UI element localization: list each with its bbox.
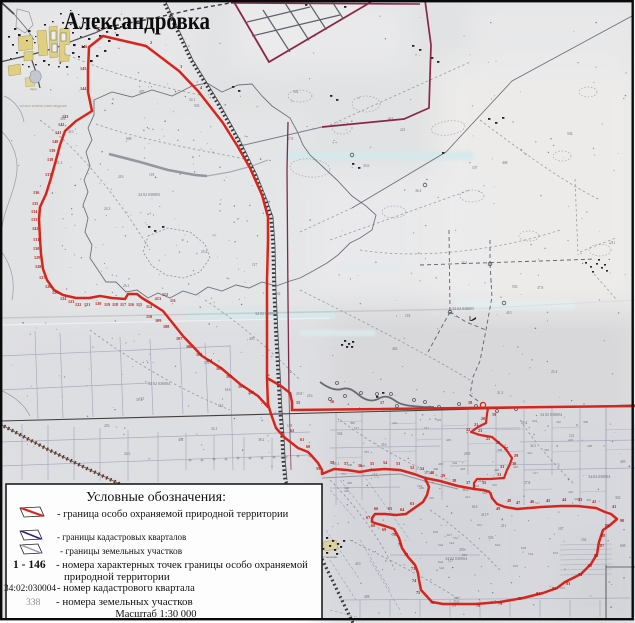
svg-text:68: 68 [371, 523, 375, 528]
svg-text:природной территории: природной территории [64, 571, 170, 583]
svg-text:133: 133 [31, 217, 37, 222]
svg-text:- граница особо охраняемой при: - граница особо охраняемой природной тер… [57, 509, 289, 520]
svg-text:23: 23 [478, 428, 482, 433]
svg-text:144: 144 [80, 86, 87, 91]
svg-text:403: 403 [438, 462, 443, 466]
svg-text:37.8: 37.8 [537, 286, 543, 290]
svg-text:109: 109 [155, 318, 161, 323]
svg-text:140: 140 [52, 139, 58, 144]
svg-text:72: 72 [404, 552, 408, 557]
svg-text:34 02 030004: 34 02 030004 [445, 556, 467, 561]
svg-text:33: 33 [497, 472, 501, 477]
svg-text:34 02 030003: 34 02 030003 [138, 192, 160, 197]
svg-text:503: 503 [436, 418, 441, 422]
svg-text:34 02 030004: 34 02 030004 [540, 412, 562, 417]
svg-text:410: 410 [355, 562, 361, 566]
svg-text:45: 45 [546, 498, 550, 503]
svg-text:колхоз имени александрова: колхоз имени александрова [20, 103, 67, 108]
svg-text:87: 87 [600, 543, 604, 548]
svg-text:517: 517 [533, 471, 538, 475]
svg-text:624: 624 [438, 560, 443, 564]
svg-text:524: 524 [417, 484, 422, 488]
svg-text:416: 416 [350, 421, 355, 425]
svg-text:71: 71 [398, 542, 402, 547]
svg-text:625: 625 [513, 564, 518, 568]
svg-text:29.8: 29.8 [464, 452, 470, 456]
svg-text:1 - 146: 1 - 146 [13, 559, 46, 571]
svg-text:117: 117 [252, 263, 257, 267]
svg-text:76: 76 [430, 600, 434, 605]
svg-text:135: 135 [32, 201, 38, 206]
svg-text:562: 562 [544, 448, 549, 452]
svg-text:33.6: 33.6 [363, 164, 369, 168]
svg-text:27: 27 [504, 446, 508, 451]
svg-text:70: 70 [392, 532, 396, 537]
svg-text:107: 107 [176, 336, 182, 341]
svg-text:59: 59 [316, 466, 320, 471]
svg-text:524: 524 [528, 552, 533, 556]
svg-text:17: 17 [380, 400, 384, 405]
svg-text:130: 130 [33, 246, 39, 251]
svg-text:408: 408 [502, 161, 508, 165]
svg-text:41: 41 [612, 504, 616, 509]
svg-text:26: 26 [496, 440, 500, 445]
svg-text:40: 40 [430, 470, 434, 475]
svg-text:503: 503 [488, 536, 494, 540]
svg-text:503: 503 [194, 104, 200, 108]
svg-text:616: 616 [225, 388, 231, 392]
svg-text:145: 145 [80, 66, 86, 71]
svg-text:65: 65 [388, 506, 392, 511]
svg-text:Александровка: Александровка [64, 8, 210, 35]
svg-text:29.8: 29.8 [296, 392, 302, 396]
svg-text:34:02:030004: 34:02:030004 [4, 584, 56, 594]
svg-text:410: 410 [68, 130, 74, 134]
svg-text:504: 504 [567, 132, 573, 136]
svg-text:39: 39 [441, 473, 445, 478]
svg-text:16: 16 [330, 399, 334, 404]
svg-text:123: 123 [68, 299, 74, 304]
svg-text:46: 46 [530, 499, 534, 504]
svg-text:85: 85 [588, 563, 592, 568]
svg-text:55: 55 [370, 461, 374, 466]
svg-text:47: 47 [516, 500, 520, 505]
svg-text:142: 142 [58, 122, 64, 127]
svg-text:116: 116 [128, 302, 134, 307]
svg-text:63: 63 [410, 501, 414, 506]
svg-text:211: 211 [610, 241, 615, 245]
svg-text:34.1: 34.1 [530, 444, 536, 448]
svg-text:2: 2 [150, 40, 152, 45]
svg-text:36.4: 36.4 [415, 189, 421, 193]
svg-text:31.2: 31.2 [497, 391, 503, 395]
svg-text:504: 504 [452, 461, 457, 465]
svg-text:101: 101 [238, 384, 244, 389]
svg-text:203: 203 [459, 548, 465, 552]
svg-text:410: 410 [506, 311, 512, 315]
svg-text:- номер кадастрового квартала: - номер кадастрового квартала [57, 583, 195, 594]
svg-text:517: 517 [354, 426, 359, 430]
svg-text:517: 517 [424, 426, 429, 430]
svg-text:412: 412 [465, 495, 470, 499]
svg-text:608: 608 [126, 137, 132, 141]
svg-text:138: 138 [47, 157, 53, 162]
svg-text:141: 141 [55, 130, 61, 135]
svg-text:31.2: 31.2 [136, 398, 142, 402]
svg-text:24.3: 24.3 [124, 452, 130, 456]
svg-text:31.2: 31.2 [56, 161, 62, 165]
svg-text:216: 216 [381, 443, 387, 447]
svg-text:108: 108 [163, 324, 169, 329]
svg-text:405: 405 [249, 337, 255, 341]
svg-text:547: 547 [492, 483, 497, 487]
svg-text:126: 126 [45, 284, 51, 289]
svg-text:531: 531 [364, 450, 369, 454]
svg-text:211: 211 [501, 524, 506, 528]
svg-text:134: 134 [31, 209, 38, 214]
svg-text:88: 88 [601, 533, 605, 538]
svg-text:146: 146 [81, 44, 87, 49]
svg-text:- границы кадастровых квартало: - границы кадастровых кварталов [57, 532, 186, 542]
svg-text:78: 78 [476, 603, 480, 608]
svg-text:503: 503 [512, 285, 518, 289]
svg-text:631: 631 [553, 551, 558, 555]
svg-text:117: 117 [120, 302, 126, 307]
svg-text:617: 617 [447, 533, 452, 537]
svg-text:119: 119 [104, 302, 110, 307]
svg-text:122: 122 [75, 302, 81, 307]
svg-text:37: 37 [466, 480, 470, 485]
svg-text:20: 20 [481, 416, 485, 421]
svg-text:132: 132 [32, 226, 38, 231]
svg-text:75: 75 [416, 590, 420, 595]
svg-text:203: 203 [104, 424, 110, 428]
svg-text:127: 127 [39, 275, 45, 280]
svg-text:338: 338 [26, 597, 41, 608]
svg-text:524: 524 [532, 419, 537, 423]
svg-text:131: 131 [33, 237, 39, 242]
svg-text:24.3: 24.3 [461, 261, 467, 265]
svg-text:34 02 030004: 34 02 030004 [148, 381, 170, 386]
svg-text:402: 402 [178, 438, 184, 442]
svg-text:107: 107 [558, 527, 564, 531]
svg-text:24.3: 24.3 [104, 207, 110, 211]
svg-text:52: 52 [410, 465, 414, 470]
svg-text:129: 129 [34, 255, 40, 260]
svg-text:531: 531 [341, 472, 346, 476]
svg-text:524: 524 [449, 541, 454, 545]
svg-text:69: 69 [382, 527, 386, 532]
svg-text:112: 112 [162, 292, 168, 297]
svg-text:30: 30 [512, 461, 516, 466]
svg-text:80: 80 [518, 596, 522, 601]
svg-text:66: 66 [374, 506, 378, 511]
svg-text:143: 143 [62, 114, 68, 119]
svg-text:105: 105 [196, 352, 202, 357]
svg-text:15: 15 [296, 400, 300, 405]
svg-text:408: 408 [364, 595, 370, 599]
svg-text:118: 118 [405, 314, 410, 318]
svg-text:25: 25 [486, 436, 490, 441]
svg-text:107: 107 [472, 166, 478, 170]
svg-text:42: 42 [592, 499, 596, 504]
svg-text:100: 100 [248, 390, 254, 395]
svg-text:517: 517 [535, 501, 540, 505]
svg-text:402: 402 [392, 347, 398, 351]
svg-text:448: 448 [587, 444, 592, 448]
svg-text:120: 120 [95, 301, 101, 306]
svg-text:410: 410 [344, 489, 349, 493]
svg-text:448: 448 [583, 420, 588, 424]
svg-text:608: 608 [620, 544, 626, 548]
svg-text:22: 22 [466, 427, 470, 432]
svg-text:531: 531 [453, 536, 458, 540]
svg-text:56: 56 [358, 463, 362, 468]
svg-text:18: 18 [468, 400, 472, 405]
svg-text:416: 416 [568, 438, 573, 442]
svg-text:118: 118 [112, 302, 118, 307]
svg-text:83: 83 [566, 581, 570, 586]
svg-text:57: 57 [344, 461, 348, 466]
svg-text:81: 81 [536, 591, 540, 596]
svg-text:113: 113 [155, 296, 161, 301]
svg-text:139: 139 [49, 148, 55, 153]
svg-text:405: 405 [446, 438, 451, 442]
svg-text:- номера характерных точек гра: - номера характерных точек границы особо… [56, 560, 308, 571]
svg-text:58: 58 [330, 460, 334, 465]
svg-text:104: 104 [206, 358, 213, 363]
svg-text:216: 216 [307, 394, 313, 398]
svg-text:405: 405 [586, 498, 591, 502]
svg-text:38: 38 [452, 478, 456, 483]
svg-text:34 02 030004: 34 02 030004 [255, 311, 277, 316]
svg-text:413: 413 [481, 513, 487, 517]
svg-text:34 02 030005: 34 02 030005 [452, 306, 474, 311]
svg-text:38.2: 38.2 [258, 438, 264, 442]
svg-text:19: 19 [492, 412, 496, 417]
svg-text:61: 61 [300, 437, 304, 442]
svg-text:412: 412 [527, 451, 532, 455]
svg-text:137: 137 [45, 172, 51, 177]
svg-text:102: 102 [226, 374, 232, 379]
svg-text:524: 524 [439, 566, 444, 570]
svg-text:405: 405 [620, 460, 626, 464]
svg-text:504: 504 [337, 432, 343, 436]
svg-text:34.1: 34.1 [211, 427, 217, 431]
svg-text:416: 416 [392, 421, 397, 425]
svg-text:403: 403 [460, 467, 465, 471]
svg-text:26.1: 26.1 [123, 284, 129, 288]
svg-text:405: 405 [347, 481, 352, 485]
svg-text:37.8: 37.8 [524, 481, 530, 485]
svg-text:408: 408 [497, 448, 502, 452]
svg-text:53: 53 [396, 461, 400, 466]
svg-text:114: 114 [146, 304, 153, 309]
svg-text:216: 216 [118, 175, 124, 179]
svg-text:410: 410 [568, 490, 573, 494]
svg-text:49: 49 [496, 506, 500, 511]
svg-text:110: 110 [146, 314, 152, 319]
svg-text:60: 60 [306, 444, 310, 449]
svg-text:Условные обозначения:: Условные обозначения: [86, 490, 226, 505]
svg-text:35: 35 [482, 480, 486, 485]
svg-text:43: 43 [578, 497, 582, 502]
svg-text:25.4: 25.4 [201, 250, 207, 254]
svg-text:51: 51 [420, 466, 424, 471]
svg-text:102: 102 [581, 538, 587, 542]
svg-text:82: 82 [552, 586, 556, 591]
svg-text:618: 618 [454, 596, 459, 600]
svg-text:86: 86 [594, 553, 598, 558]
svg-text:618: 618 [433, 530, 438, 534]
svg-text:111: 111 [170, 298, 176, 303]
svg-text:618: 618 [521, 546, 526, 550]
svg-text:121: 121 [84, 302, 90, 307]
svg-text:136: 136 [33, 190, 39, 195]
svg-text:77: 77 [452, 603, 456, 608]
svg-text:616: 616 [472, 505, 478, 509]
svg-text:106: 106 [186, 344, 192, 349]
svg-text:416: 416 [429, 496, 434, 500]
svg-text:103: 103 [216, 366, 222, 371]
svg-text:67: 67 [366, 515, 370, 520]
svg-text:3: 3 [180, 64, 182, 69]
svg-text:89: 89 [605, 523, 609, 528]
svg-text:62: 62 [290, 428, 294, 433]
svg-text:128: 128 [35, 264, 41, 269]
svg-text:410: 410 [556, 420, 561, 424]
svg-text:- границы земельных участков: - границы земельных участков [60, 547, 183, 557]
svg-text:34.1: 34.1 [189, 98, 195, 102]
svg-text:29: 29 [514, 453, 518, 458]
svg-text:624: 624 [495, 543, 500, 547]
svg-text:631: 631 [477, 523, 482, 527]
svg-text:115: 115 [136, 302, 142, 307]
svg-text:73: 73 [411, 566, 415, 571]
svg-text:- номера земельных участков: - номера земельных участков [56, 596, 193, 608]
svg-text:124: 124 [60, 296, 67, 301]
svg-text:118: 118 [149, 173, 154, 177]
svg-text:125: 125 [52, 290, 58, 295]
svg-text:48: 48 [507, 498, 511, 503]
svg-text:90: 90 [620, 518, 624, 523]
svg-text:25.4: 25.4 [551, 370, 557, 374]
svg-text:524: 524 [438, 543, 443, 547]
svg-text:79: 79 [498, 601, 502, 606]
svg-text:302: 302 [615, 496, 621, 500]
svg-text:пруд: пруд [30, 87, 37, 91]
svg-text:221: 221 [400, 128, 406, 132]
svg-text:34:02:030004: 34:02:030004 [588, 474, 610, 479]
svg-text:21: 21 [474, 422, 478, 427]
svg-text:31: 31 [500, 464, 504, 469]
